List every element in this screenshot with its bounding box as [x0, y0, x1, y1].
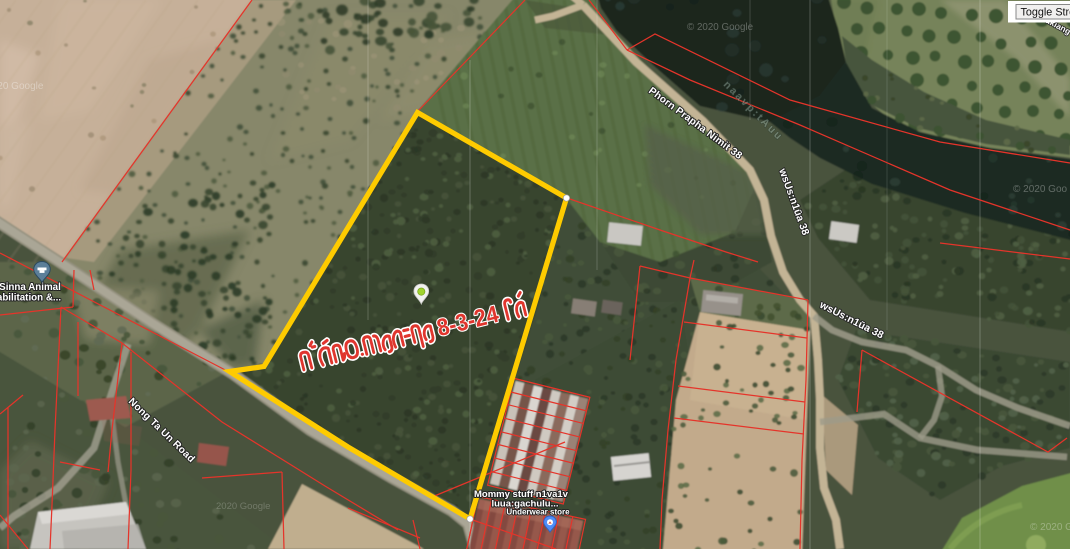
svg-text:Toggle Stree: Toggle Stree [1021, 7, 1070, 19]
svg-text:Underwear store: Underwear store [506, 508, 570, 517]
svg-text:Sinna Animalhabilitation &...: Sinna Animalhabilitation &... [0, 282, 61, 304]
svg-text:© 2020 Google: © 2020 Google [0, 81, 44, 92]
svg-text:© 2020 Google: © 2020 Google [687, 22, 754, 33]
svg-text:© 2020 G: © 2020 G [1030, 522, 1070, 533]
svg-text:© 2020 Goo: © 2020 Goo [1013, 184, 1068, 195]
svg-text:2020 Google: 2020 Google [216, 501, 270, 512]
